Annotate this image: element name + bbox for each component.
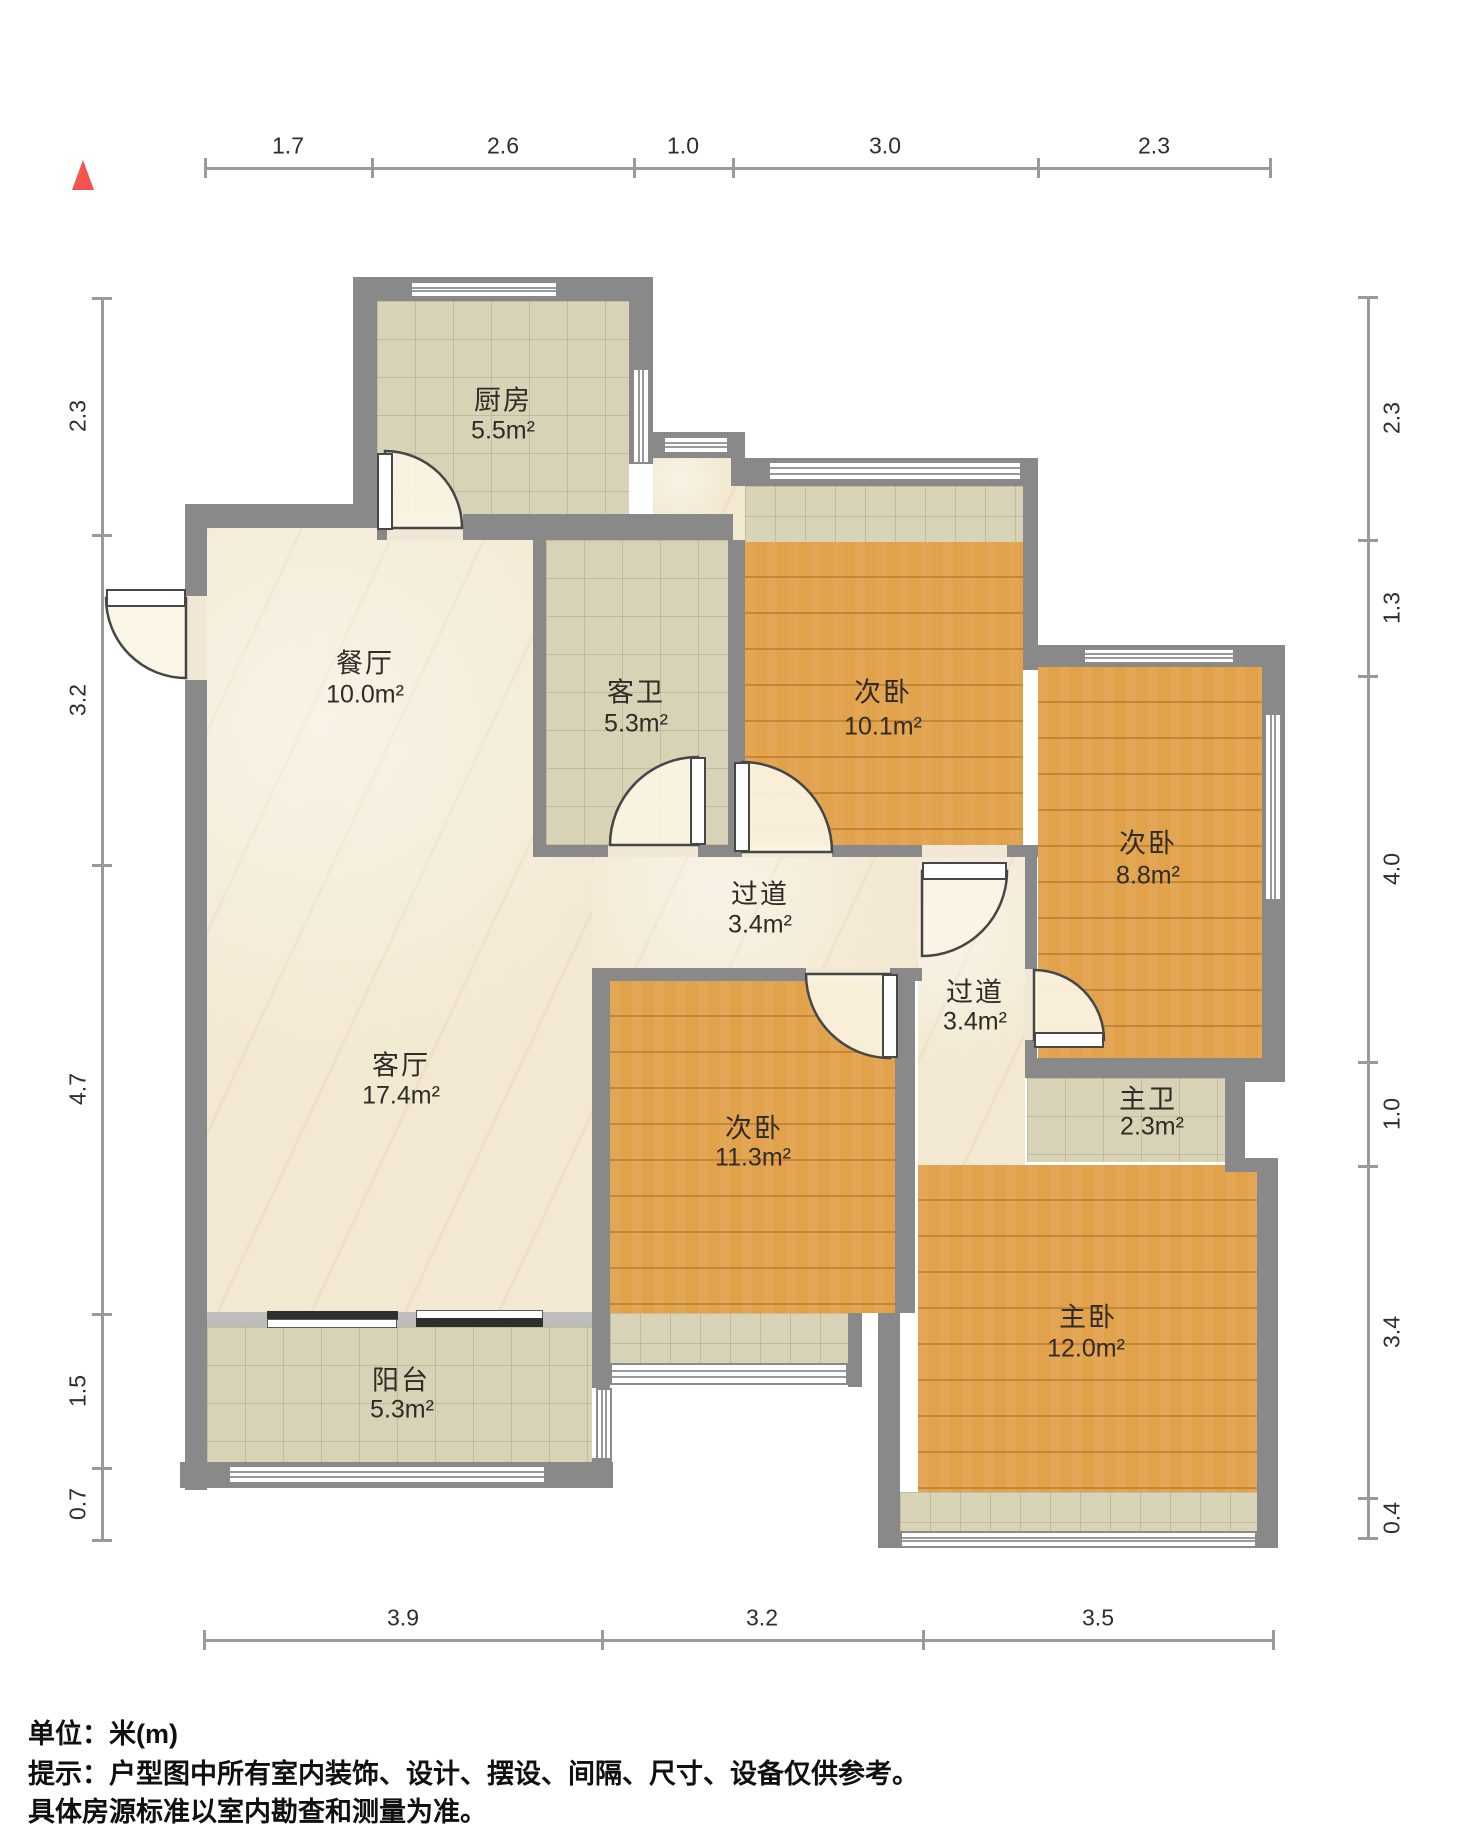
wall-kitchen-bottom-b — [461, 514, 733, 540]
wall-corridor-right-a — [1025, 857, 1037, 969]
room-label-1-name: 餐厅 — [336, 642, 394, 681]
opening-entry — [185, 596, 207, 680]
room-label-0-name: 厨房 — [474, 379, 532, 418]
door-kitchen-leaf — [377, 453, 393, 530]
dim-label-left-4.7: 4.7 — [65, 1073, 92, 1105]
window-balcony-bottom — [228, 1465, 546, 1484]
room-label-5-area: 3.4m² — [728, 911, 792, 940]
window-kitchen-right — [632, 368, 650, 464]
window-bay-bed101 — [768, 461, 1022, 481]
dim-label-right-1.3: 1.3 — [1379, 592, 1406, 624]
dim-label-right-2.3: 2.3 — [1379, 402, 1406, 434]
dim-tick-right-1 — [1358, 539, 1378, 542]
opening-kitchen — [387, 514, 463, 540]
dim-label-top-2.3: 2.3 — [1138, 133, 1170, 160]
dim-tick-top-4 — [1037, 158, 1040, 178]
room-label-4-area: 8.8m² — [1116, 862, 1180, 891]
dim-label-left-1.5: 1.5 — [65, 1375, 92, 1407]
dim-tick-right-6 — [1358, 1537, 1378, 1540]
wall-guestbath-left — [533, 540, 546, 845]
room-label-4-name: 次卧 — [1119, 822, 1177, 861]
dim-tick-right-3 — [1358, 1061, 1378, 1064]
dim-label-right-1.0: 1.0 — [1379, 1098, 1406, 1130]
dim-label-right-3.4: 3.4 — [1379, 1316, 1406, 1348]
dim-label-left-2.3: 2.3 — [65, 400, 92, 432]
room-label-9-name: 主卫 — [1119, 1078, 1177, 1117]
opening-bed88 — [1025, 969, 1037, 1040]
window-balcony-right — [596, 1388, 612, 1460]
door-corridor-leaf — [922, 862, 1007, 880]
dim-label-right-4.0: 4.0 — [1379, 853, 1406, 885]
dim-tick-top-1 — [371, 158, 374, 178]
window-north-small — [663, 436, 729, 454]
wall-mwc-right — [1225, 1078, 1245, 1170]
room-label-7-name: 客厅 — [372, 1044, 430, 1083]
wall-bay113-right — [848, 1313, 862, 1387]
room-label-10-name: 主卧 — [1059, 1296, 1117, 1335]
dim-tick-right-5 — [1358, 1497, 1378, 1500]
room-label-6-name: 过道 — [946, 971, 1004, 1010]
dim-tick-right-4 — [1358, 1165, 1378, 1168]
room-label-11-area: 5.3m² — [370, 1396, 434, 1425]
wall-hall-top-d — [1007, 845, 1038, 857]
wall-south-mid — [878, 1313, 900, 1548]
door-entry-leaf — [106, 589, 186, 607]
room-label-6-area: 3.4m² — [943, 1008, 1007, 1037]
door-guest-bath-leaf — [690, 757, 706, 845]
floorplan-canvas: 厨房5.5m²餐厅10.0m²客卫5.3m²次卧10.1m²次卧8.8m²过道3… — [0, 0, 1468, 1830]
room-label-11-name: 阳台 — [372, 1359, 430, 1398]
wall-hall-top-a — [533, 845, 608, 857]
wall-living-right — [592, 968, 610, 1313]
dim-line-left — [101, 298, 104, 1540]
dim-tick-left-2 — [92, 864, 112, 867]
dim-line-right — [1367, 297, 1370, 1538]
dim-label-bottom-3.5: 3.5 — [1082, 1605, 1114, 1632]
room-label-3-area: 10.1m² — [844, 713, 922, 742]
window-bay-bed113 — [610, 1363, 848, 1385]
opening-bed101 — [742, 845, 832, 857]
door-entry-arc — [106, 598, 186, 678]
dim-tick-bottom-0 — [203, 1630, 206, 1650]
floor-bay-sill-bed113 — [610, 1313, 848, 1363]
wall-bed88-bottom — [1025, 1058, 1262, 1078]
dim-tick-left-1 — [92, 534, 112, 537]
floor-bay-sill-bed101 — [745, 486, 1023, 542]
dim-tick-top-5 — [1269, 158, 1272, 178]
wall-hall-top-c — [832, 845, 922, 857]
room-label-7-area: 17.4m² — [362, 1082, 440, 1111]
dim-line-bottom — [204, 1639, 1273, 1642]
opening-corridor — [922, 845, 1007, 857]
window-bed88-right — [1264, 713, 1282, 901]
dim-label-bottom-3.9: 3.9 — [387, 1605, 419, 1632]
footer-unit-note: 单位：米(m) — [28, 1712, 178, 1751]
dim-tick-left-0 — [92, 297, 112, 300]
slide-panel-dark-right — [416, 1318, 543, 1327]
opening-bed113 — [806, 968, 890, 981]
door-bed88-leaf — [1034, 1032, 1104, 1048]
dim-label-top-2.6: 2.6 — [487, 133, 519, 160]
wall-hall-bottom-a — [592, 968, 806, 981]
dim-line-top — [205, 167, 1270, 170]
dim-tick-right-2 — [1358, 675, 1378, 678]
dim-label-top-1.0: 1.0 — [667, 133, 699, 160]
dim-tick-top-0 — [204, 158, 207, 178]
dim-tick-bottom-2 — [922, 1630, 925, 1650]
floorplan-stage: 厨房5.5m²餐厅10.0m²客卫5.3m²次卧10.1m²次卧8.8m²过道3… — [0, 0, 1468, 1830]
window-master-bay — [900, 1531, 1257, 1548]
dim-tick-left-3 — [92, 1313, 112, 1316]
dim-tick-top-3 — [732, 158, 735, 178]
room-label-10-area: 12.0m² — [1047, 1335, 1125, 1364]
room-label-8-name: 次卧 — [725, 1107, 783, 1146]
room-label-0-area: 5.5m² — [471, 417, 535, 446]
dim-label-left-0.7: 0.7 — [65, 1488, 92, 1520]
dim-tick-top-2 — [633, 158, 636, 178]
opening-guest-bath — [608, 845, 698, 857]
dim-tick-left-4 — [92, 1467, 112, 1470]
wall-balcony-right-a — [592, 1313, 610, 1388]
window-kitchen-top — [410, 281, 558, 298]
slide-panel-white-left — [267, 1319, 397, 1328]
wall-dining-top — [185, 504, 377, 528]
dim-tick-left-5 — [92, 1539, 112, 1542]
dim-label-right-0.4: 0.4 — [1379, 1502, 1406, 1534]
window-bed88-top — [1083, 648, 1235, 664]
wall-corridor-left — [895, 981, 915, 1313]
door-bed101-leaf — [734, 762, 750, 852]
room-label-9-area: 2.3m² — [1120, 1113, 1184, 1142]
dim-label-top-3.0: 3.0 — [869, 133, 901, 160]
footer-disclaimer-2: 具体房源标准以室内勘查和测量为准。 — [28, 1790, 487, 1829]
dim-label-bottom-3.2: 3.2 — [746, 1605, 778, 1632]
floor-bay-sill-master — [900, 1492, 1257, 1533]
dim-tick-right-0 — [1358, 296, 1378, 299]
room-label-5-name: 过道 — [731, 873, 789, 912]
footer-disclaimer-1: 提示：户型图中所有室内装饰、设计、摆设、间隔、尺寸、设备仅供参考。 — [28, 1752, 919, 1791]
room-label-3-name: 次卧 — [854, 671, 912, 710]
wall-master-right — [1257, 1158, 1278, 1548]
dim-tick-bottom-3 — [1272, 1630, 1275, 1650]
wall-bed101-right — [1023, 458, 1038, 670]
room-label-1-area: 10.0m² — [326, 681, 404, 710]
wall-kitchen-left — [353, 277, 377, 527]
room-label-8-area: 11.3m² — [715, 1144, 791, 1173]
door-bed113-leaf — [882, 974, 898, 1058]
dim-tick-bottom-1 — [601, 1630, 604, 1650]
dim-label-left-3.2: 3.2 — [65, 684, 92, 716]
room-label-2-name: 客卫 — [607, 671, 665, 710]
room-label-2-area: 5.3m² — [604, 710, 668, 739]
dim-label-top-1.7: 1.7 — [272, 133, 304, 160]
